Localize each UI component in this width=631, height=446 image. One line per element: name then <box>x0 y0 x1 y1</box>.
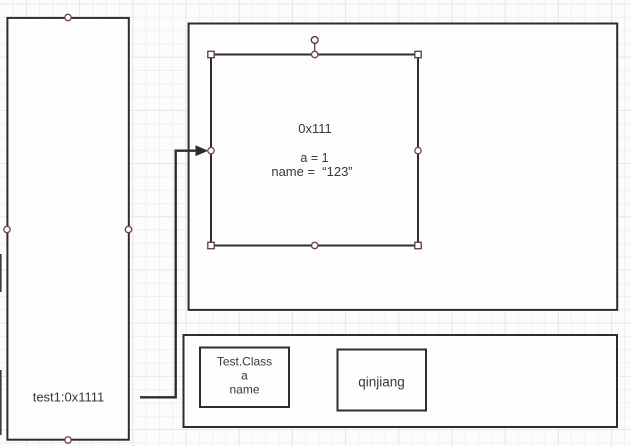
svg-text:a = 1: a = 1 <box>300 151 328 165</box>
svg-text:qinjiang: qinjiang <box>358 375 405 390</box>
svg-text:Test.Class: Test.Class <box>217 355 272 369</box>
svg-text:0x111: 0x111 <box>298 121 332 136</box>
svg-text:name: name <box>229 383 259 397</box>
svg-text:test1:0x1111: test1:0x1111 <box>33 390 105 405</box>
svg-text:a: a <box>241 369 248 383</box>
svg-text:name = “123”: name = “123” <box>271 164 352 179</box>
